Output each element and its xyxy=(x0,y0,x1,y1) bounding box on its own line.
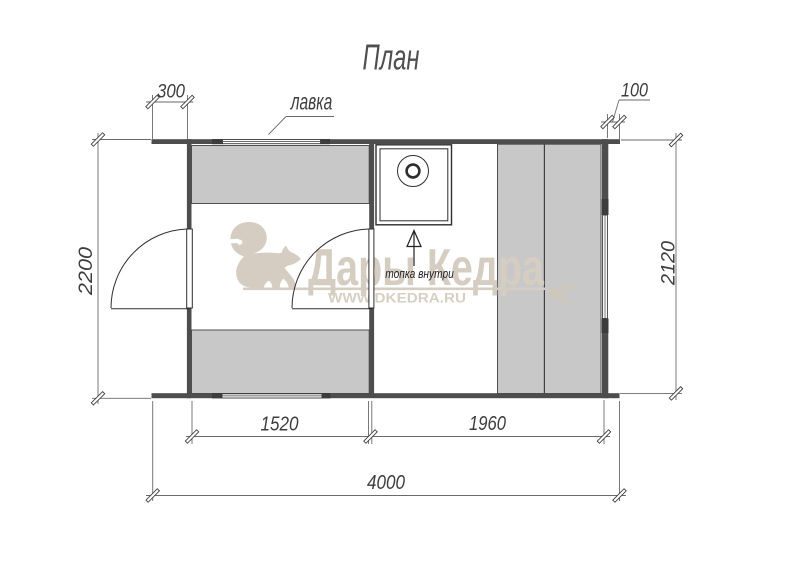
svg-text:2120: 2120 xyxy=(659,241,680,286)
svg-text:1520: 1520 xyxy=(261,412,299,435)
svg-text:топка внутри: топка внутри xyxy=(385,267,454,281)
svg-text:4000: 4000 xyxy=(367,471,405,494)
svg-text:100: 100 xyxy=(621,80,648,102)
svg-text:WWW.DKEDRA.RU: WWW.DKEDRA.RU xyxy=(328,291,466,306)
svg-text:лавка: лавка xyxy=(289,89,332,115)
svg-text:2200: 2200 xyxy=(76,247,97,297)
svg-text:300: 300 xyxy=(157,81,185,103)
svg-text:План: План xyxy=(363,37,420,78)
svg-text:1960: 1960 xyxy=(469,412,506,435)
